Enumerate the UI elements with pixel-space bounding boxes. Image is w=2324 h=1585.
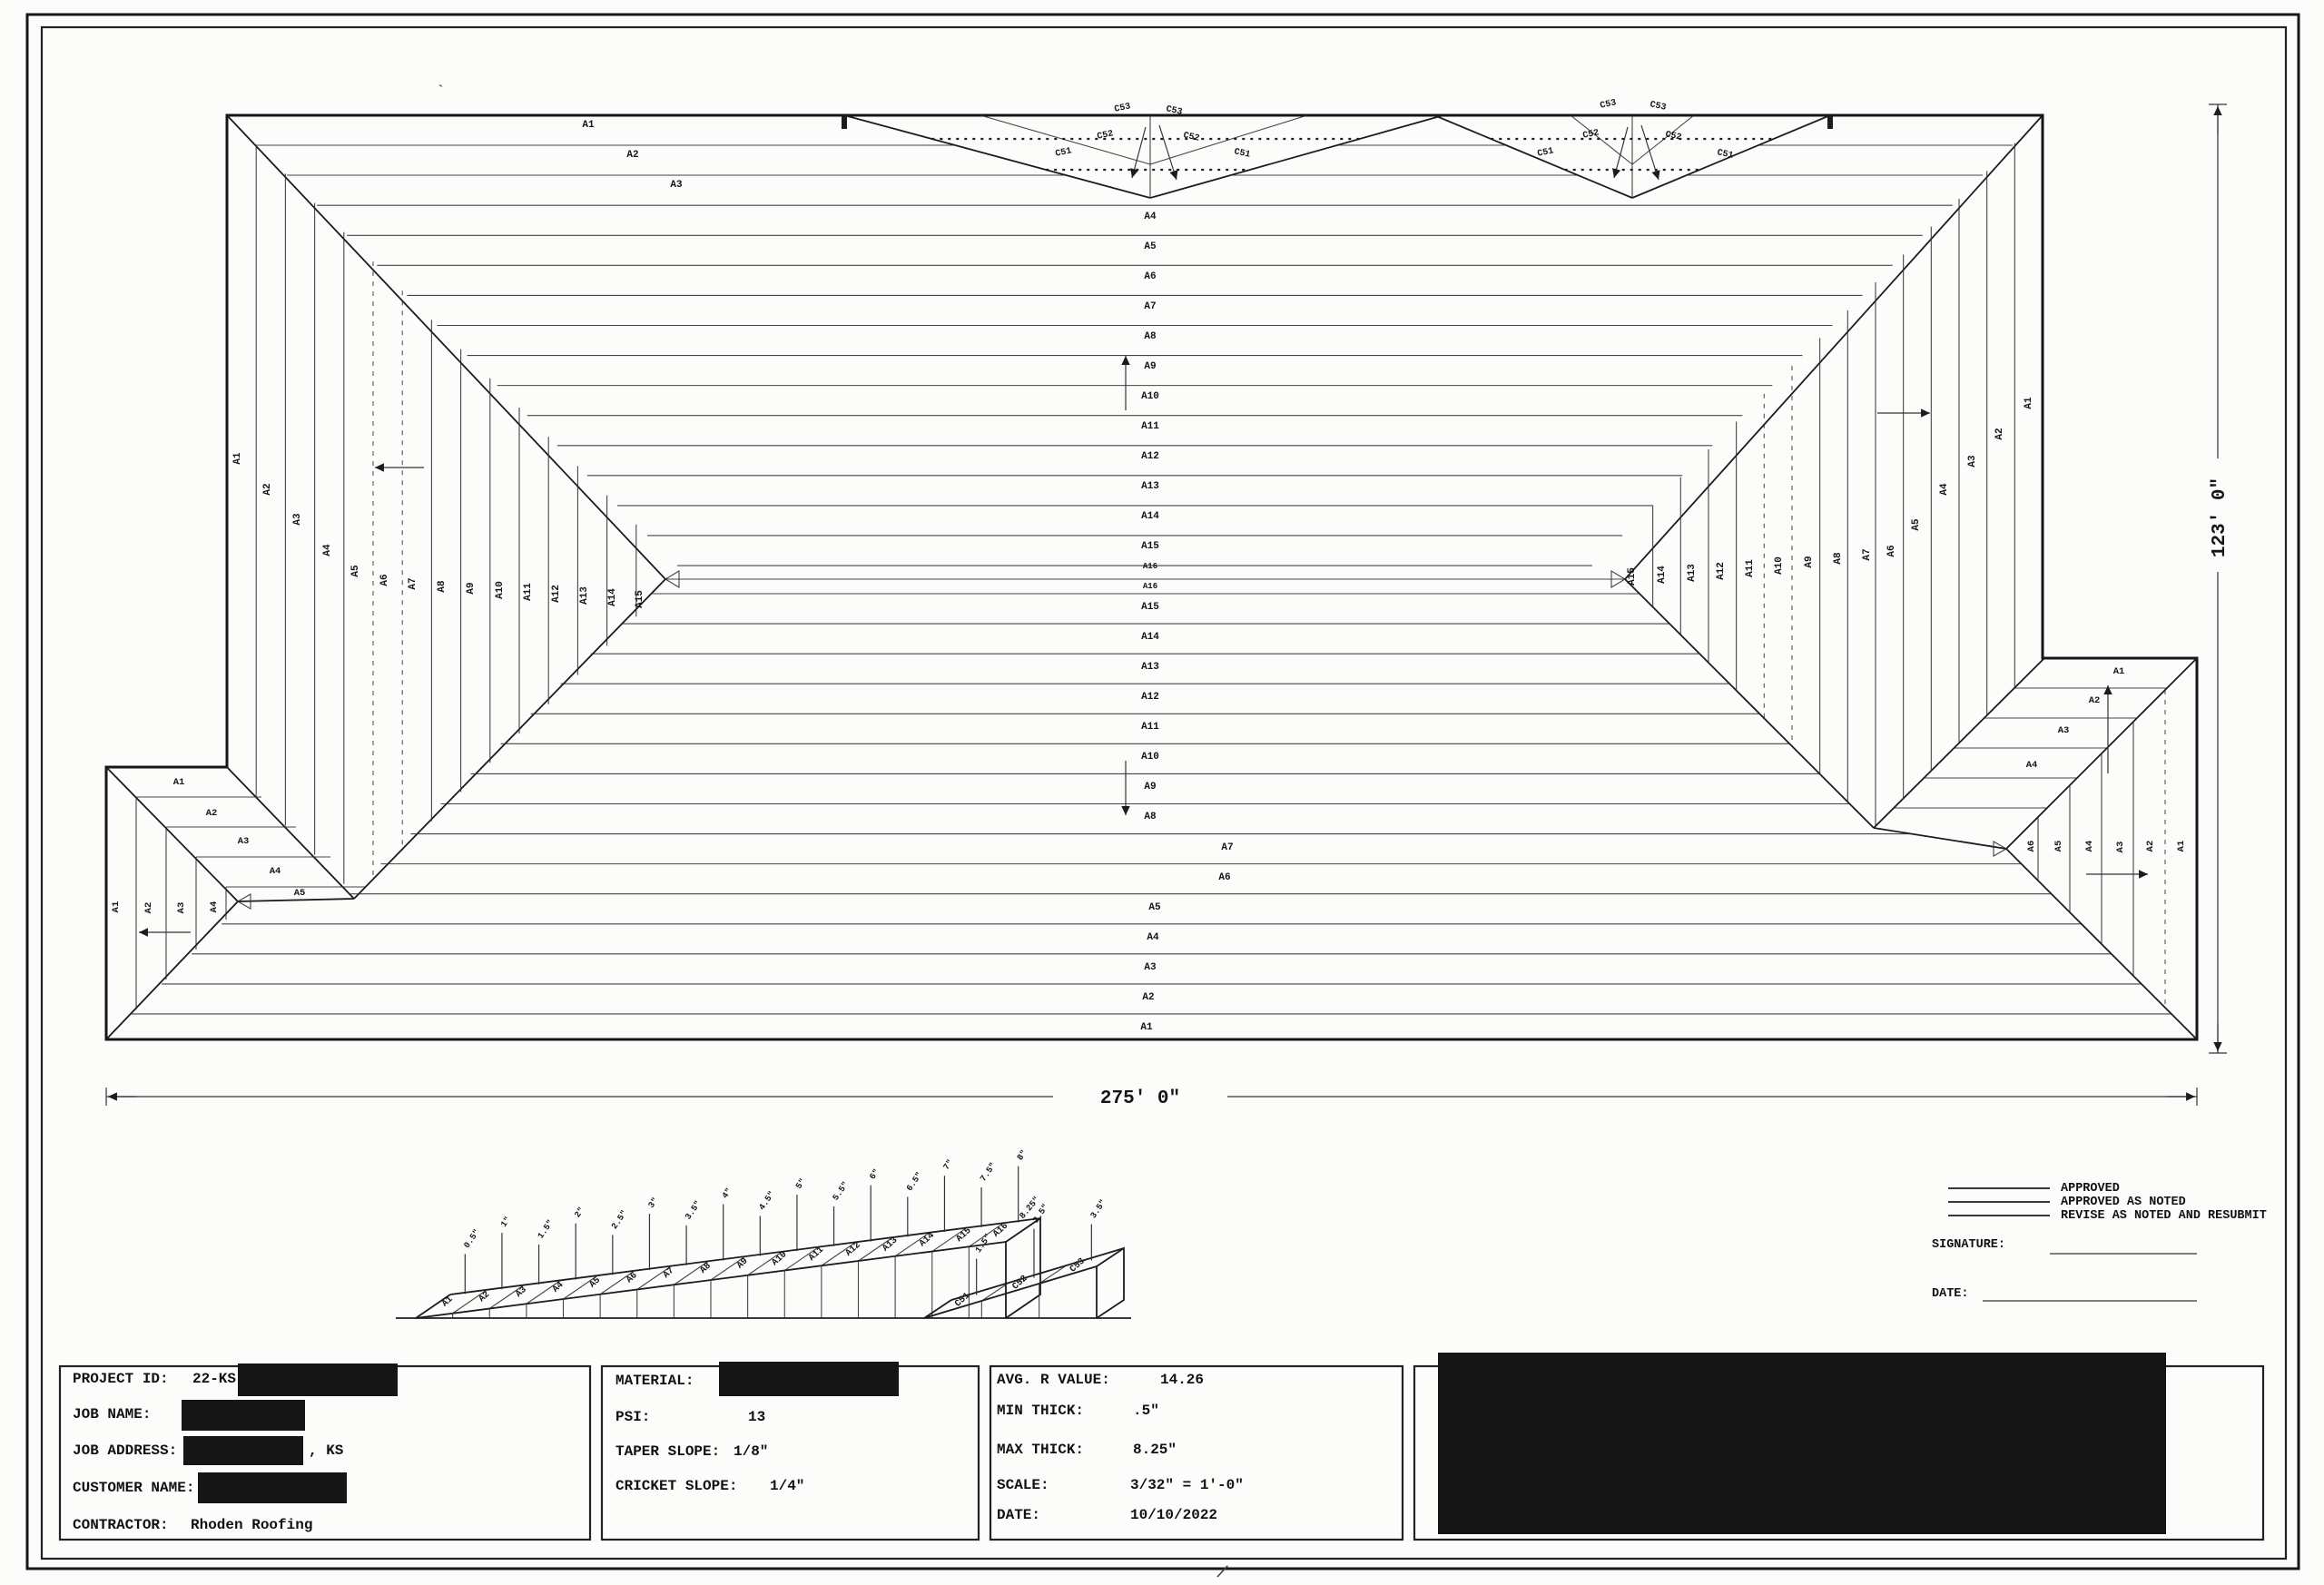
panel-label: A7 <box>1144 301 1156 312</box>
cricket-valley <box>1150 115 1443 198</box>
date-label: DATE: <box>1932 1287 1969 1301</box>
panel-label: A15 <box>1141 602 1159 613</box>
panel-label: A6 <box>1218 872 1230 883</box>
min-thick-value: .5" <box>1133 1403 1159 1419</box>
iso-panel-label: A8 <box>699 1261 714 1275</box>
panel-label: A10 <box>495 581 506 599</box>
flow-arrow <box>1921 409 1930 417</box>
panel-label: A4 <box>2026 760 2038 771</box>
panel-label: A3 <box>2058 725 2070 736</box>
valley-line <box>227 767 354 899</box>
panel-label: A5 <box>1911 518 1922 531</box>
panel-label: A7 <box>408 577 419 589</box>
panel-label: A13 <box>1141 662 1159 673</box>
cricket-label: C51 <box>1716 148 1734 162</box>
panel-label: A2 <box>2089 695 2101 706</box>
sheet-date-label: DATE: <box>997 1507 1040 1523</box>
cricket-label: C52 <box>1664 130 1682 143</box>
job-address-suffix: , KS <box>309 1442 343 1459</box>
redaction-title-block-right <box>1438 1353 2166 1534</box>
panel-label: A14 <box>1141 632 1159 643</box>
panel-label: A13 <box>1687 564 1698 582</box>
ridge-line <box>1874 828 2006 849</box>
cricket-label: C51 <box>1537 146 1555 160</box>
cricket-slope-value: 1/4" <box>770 1478 804 1494</box>
iso-thickness-label: 3.5" <box>1088 1197 1108 1220</box>
panel-label: A8 <box>1144 812 1157 822</box>
panel-label: A3 <box>2115 842 2126 853</box>
dimension-arrow <box>2213 1042 2221 1051</box>
panel-label: A12 <box>1716 562 1727 580</box>
cricket-valley <box>1434 115 1632 198</box>
hip-line <box>106 767 238 901</box>
iso-panel-label: A3 <box>514 1285 528 1300</box>
psi-label: PSI: <box>615 1409 650 1425</box>
panel-label: A5 <box>2053 841 2064 852</box>
iso-panel-divider <box>1039 1265 1067 1284</box>
dimension-arrow <box>2213 106 2221 115</box>
drain-arrow <box>1612 168 1620 178</box>
panel-label: A7 <box>1221 842 1233 853</box>
iso-panel-label: A6 <box>625 1271 639 1285</box>
iso-panel-label: A1 <box>440 1295 455 1309</box>
panel-label: A16 <box>1143 562 1157 571</box>
panel-label: A5 <box>294 888 306 899</box>
panel-label: A10 <box>1141 752 1159 763</box>
panel-label: A2 <box>2145 841 2156 852</box>
contractor-value: Rhoden Roofing <box>191 1517 312 1533</box>
material-label: MATERIAL: <box>615 1373 694 1389</box>
iso-thickness-label: 0.5" <box>462 1227 482 1250</box>
panel-label: A4 <box>322 544 333 556</box>
iso-thickness-label: 8" <box>1015 1148 1029 1163</box>
drain-arrow <box>1170 170 1178 180</box>
redaction-material <box>719 1362 899 1396</box>
panel-label: A5 <box>350 565 361 577</box>
panel-label: A6 <box>1144 271 1156 282</box>
panel-label: A13 <box>579 586 590 605</box>
taper-slope-label: TAPER SLOPE: <box>615 1443 720 1460</box>
drain-arrow <box>1652 170 1660 180</box>
roof-outline <box>106 115 2197 1039</box>
iso-thickness-label: 1.5" <box>536 1218 556 1241</box>
panel-label: A11 <box>523 583 534 601</box>
panel-label: A3 <box>1144 962 1157 973</box>
contractor-label: CONTRACTOR: <box>73 1517 169 1533</box>
cricket-valley <box>844 115 1150 198</box>
panel-label: A1 <box>2024 397 2034 409</box>
panel-label: A1 <box>173 777 185 788</box>
panel-label: A2 <box>1994 428 2005 439</box>
panel-label: A12 <box>551 585 562 603</box>
panel-label: A2 <box>626 150 638 161</box>
panel-label: A11 <box>1141 421 1159 432</box>
panel-label: A8 <box>437 580 448 593</box>
panel-label: A2 <box>1142 992 1154 1003</box>
page-border-inner <box>42 27 2286 1559</box>
pencil-mark: ` <box>437 84 445 99</box>
panel-label: A4 <box>2084 841 2095 852</box>
cricket-label: C53 <box>1114 102 1132 115</box>
panel-label: A15 <box>1141 541 1159 552</box>
redaction-customer-name <box>198 1472 347 1503</box>
panel-label: A14 <box>1141 511 1159 522</box>
panel-label: A8 <box>1144 331 1157 342</box>
iso-thickness-label: 4" <box>720 1186 734 1201</box>
flow-arrow <box>1121 356 1129 365</box>
job-name-label: JOB NAME: <box>73 1406 151 1423</box>
legend-approved-as-noted: APPROVED AS NOTED <box>2061 1196 2186 1209</box>
panel-label: A3 <box>1967 455 1978 468</box>
hip-line <box>227 115 665 579</box>
panel-label: A3 <box>670 180 683 191</box>
page-border-outer <box>27 15 2299 1569</box>
panel-label: A8 <box>1833 552 1844 565</box>
cricket-label: C53 <box>1649 100 1667 113</box>
iso-thickness-label: 6.5" <box>904 1170 924 1193</box>
panel-label: A14 <box>1657 566 1668 584</box>
scale-value: 3/32" = 1'-0" <box>1130 1477 1244 1493</box>
flow-arrow <box>375 463 384 471</box>
panel-label: A1 <box>2176 841 2187 852</box>
redaction-job-address <box>183 1436 303 1465</box>
iso-thickness-label: 6" <box>868 1167 882 1182</box>
cricket-label: C51 <box>1233 147 1251 161</box>
drawing-sheet: A1A2A3A4A5A6A7A8A9A10A11A12A13A14A15A16A… <box>0 0 2324 1585</box>
legend-revise: REVISE AS NOTED AND RESUBMIT <box>2061 1209 2267 1223</box>
flow-arrow <box>2103 685 2112 694</box>
panel-label: A5 <box>1148 902 1161 913</box>
panel-label: A12 <box>1141 451 1159 462</box>
cricket-label: C53 <box>1600 98 1618 112</box>
flow-arrow <box>1121 806 1129 815</box>
panel-label: A9 <box>1804 556 1815 567</box>
roof-taper-plan-drawing: A1A2A3A4A5A6A7A8A9A10A11A12A13A14A15A16A… <box>0 0 2324 1585</box>
panel-label: A11 <box>1745 559 1756 577</box>
iso-thickness-label: 1" <box>498 1215 513 1229</box>
hip-line <box>354 579 665 899</box>
iso-cricket-edge <box>1097 1248 1124 1318</box>
max-thick-value: 8.25" <box>1133 1442 1177 1458</box>
ridge-line <box>238 899 354 901</box>
iso-thickness-label: 2.5" <box>609 1208 629 1231</box>
panel-label: A4 <box>270 866 281 877</box>
panel-label: A4 <box>1147 932 1159 943</box>
panel-label: A11 <box>1141 722 1159 733</box>
panel-label: A1 <box>2113 666 2125 677</box>
iso-thickness-label: 5" <box>793 1176 808 1191</box>
dimension-arrow <box>2186 1092 2195 1100</box>
dimension-width-label: 275' 0" <box>1100 1088 1180 1109</box>
iso-thickness-label: 2" <box>573 1206 587 1220</box>
cricket-label: C52 <box>1097 129 1115 143</box>
panel-label: A2 <box>206 808 218 819</box>
panel-label: A3 <box>176 902 187 914</box>
cricket-edge-tick <box>842 115 847 129</box>
panel-label: A13 <box>1141 481 1159 492</box>
iso-panel-label: A5 <box>588 1275 603 1290</box>
hip-line <box>106 901 238 1039</box>
signature-label: SIGNATURE: <box>1932 1238 2005 1252</box>
panel-label: A6 <box>1886 545 1897 556</box>
avg-r-value: 14.26 <box>1160 1372 1204 1388</box>
project-id-label: PROJECT ID: <box>73 1371 169 1387</box>
iso-thickness-label: 5.5" <box>831 1180 851 1203</box>
iso-thickness-label: 7" <box>941 1157 956 1172</box>
iso-thickness-label: 3" <box>646 1196 661 1210</box>
iso-panel-label: A7 <box>662 1266 676 1281</box>
cricket-slope-label: CRICKET SLOPE: <box>615 1478 737 1494</box>
redaction-job-name <box>182 1400 305 1431</box>
iso-wedge-edge <box>1006 1218 1040 1318</box>
scale-label: SCALE: <box>997 1477 1049 1493</box>
taper-slope-value: 1/8" <box>734 1443 768 1460</box>
panel-label: A7 <box>1862 548 1873 560</box>
hip-line <box>1625 579 1874 828</box>
avg-r-label: AVG. R VALUE: <box>997 1372 1110 1388</box>
panel-label: A4 <box>1939 483 1950 496</box>
iso-panel-label: A4 <box>551 1280 566 1295</box>
panel-label: A9 <box>1144 782 1156 792</box>
legend-approved: APPROVED <box>2061 1182 2120 1196</box>
cricket-edge-tick <box>1827 115 1833 129</box>
panel-label: A5 <box>1144 241 1157 252</box>
panel-label: A14 <box>607 588 618 606</box>
panel-label: A4 <box>1144 212 1157 222</box>
flow-arrow <box>139 928 148 936</box>
panel-label: A16 <box>1143 582 1157 591</box>
panel-label: A15 <box>1627 567 1638 586</box>
iso-thickness-label: 3.5" <box>684 1199 704 1222</box>
redaction-project-id <box>238 1363 398 1396</box>
panel-label: A1 <box>111 901 122 913</box>
psi-value: 13 <box>748 1409 765 1425</box>
panel-label: A9 <box>1144 361 1156 372</box>
min-thick-label: MIN THICK: <box>997 1403 1084 1419</box>
job-address-label: JOB ADDRESS: <box>73 1442 177 1459</box>
cricket-label: C51 <box>1055 146 1073 160</box>
panel-label: A10 <box>1774 556 1785 575</box>
panel-label: A3 <box>292 513 303 526</box>
panel-label: A1 <box>1140 1022 1153 1033</box>
cricket-label: C52 <box>1182 131 1200 144</box>
panel-label: A2 <box>143 902 154 914</box>
panel-label: A15 <box>635 590 645 608</box>
iso-panel-label: A9 <box>735 1256 750 1271</box>
iso-thickness-label: 7.5" <box>979 1161 999 1184</box>
flow-arrow <box>2139 870 2148 878</box>
panel-label: A3 <box>238 836 250 847</box>
panel-label: A2 <box>262 483 273 495</box>
panel-label: A6 <box>2026 841 2037 852</box>
panel-label: A1 <box>582 120 595 131</box>
panel-label: A1 <box>232 452 243 465</box>
panel-label: A12 <box>1141 692 1159 703</box>
dimension-height-label: 123' 0" <box>2210 477 2230 557</box>
iso-thickness-label: 4.5" <box>757 1189 777 1212</box>
panel-label: A10 <box>1141 391 1159 402</box>
max-thick-label: MAX THICK: <box>997 1442 1084 1458</box>
panel-label: A9 <box>466 582 477 594</box>
project-id-value: 22-KS- <box>192 1371 245 1387</box>
panel-label: A6 <box>379 574 390 586</box>
sheet-date-value: 10/10/2022 <box>1130 1507 1217 1523</box>
hip-line <box>1625 115 2043 579</box>
customer-label: CUSTOMER NAME: <box>73 1480 194 1496</box>
dimension-arrow <box>108 1092 117 1100</box>
iso-panel-divider <box>981 1283 1009 1301</box>
iso-panel-label: A2 <box>478 1290 492 1304</box>
panel-label: A4 <box>209 901 220 913</box>
